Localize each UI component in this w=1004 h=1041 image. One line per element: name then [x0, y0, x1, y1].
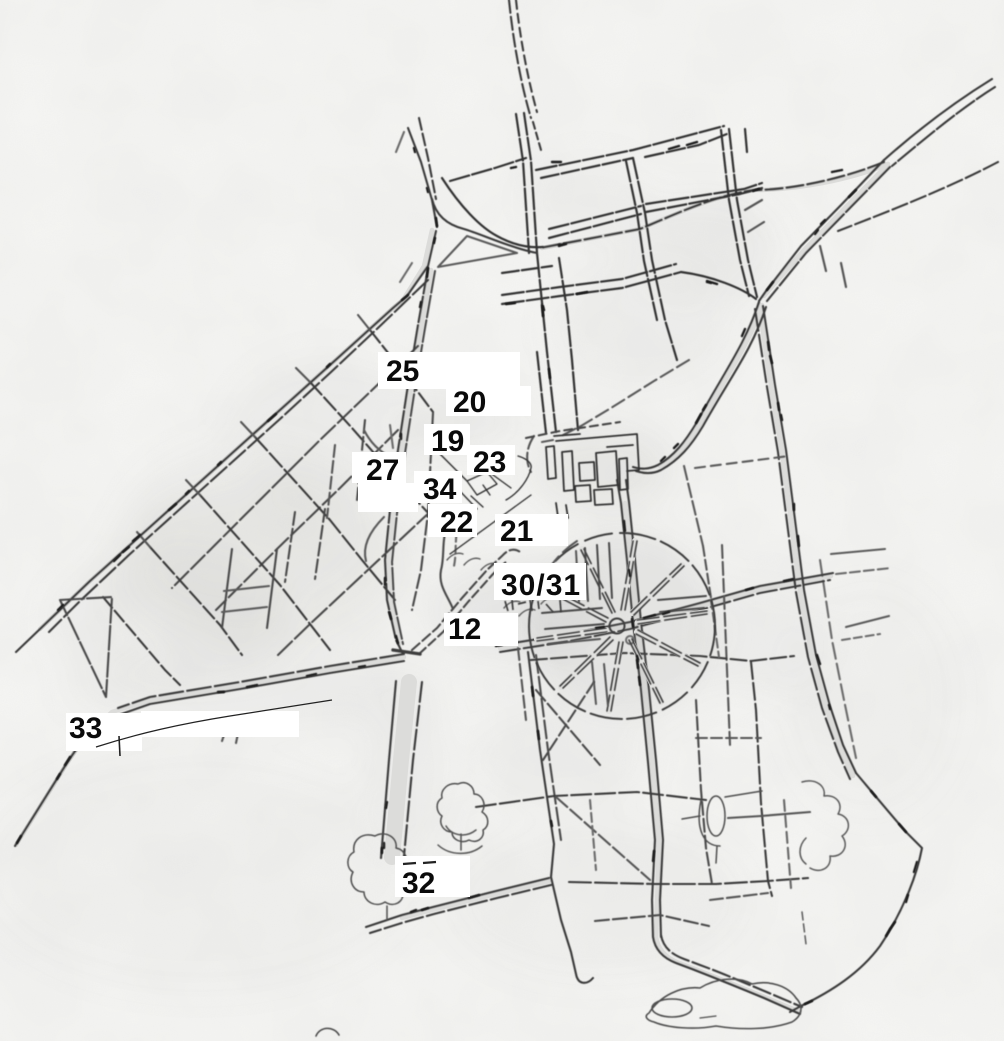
svg-text:25: 25	[386, 355, 419, 388]
svg-text:32: 32	[402, 867, 435, 900]
svg-text:19: 19	[431, 425, 464, 458]
svg-text:21: 21	[500, 515, 533, 548]
svg-text:23: 23	[473, 446, 506, 479]
svg-text:34: 34	[423, 473, 457, 506]
svg-text:27: 27	[366, 454, 399, 487]
svg-text:12: 12	[448, 613, 481, 646]
svg-text:20: 20	[453, 386, 486, 419]
svg-text:22: 22	[440, 506, 473, 539]
svg-text:33: 33	[69, 712, 102, 745]
svg-text:30/31: 30/31	[501, 569, 581, 602]
